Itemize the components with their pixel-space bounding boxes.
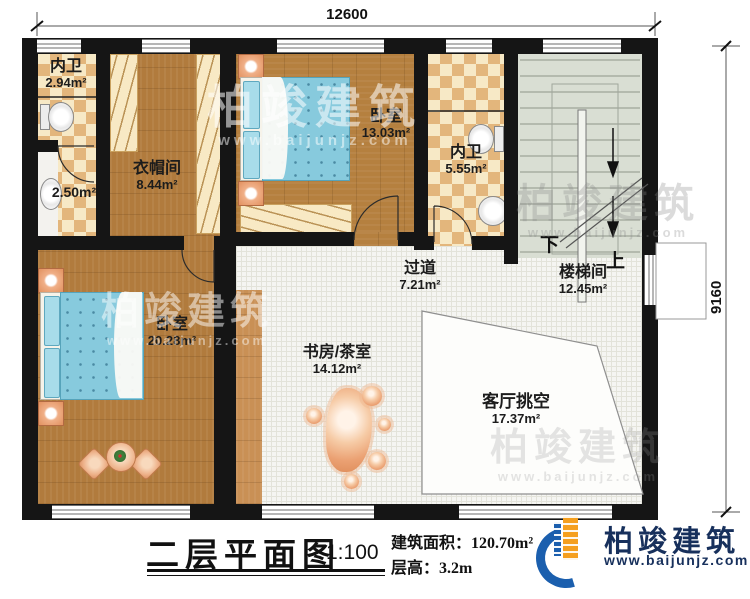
- pillow: [243, 131, 260, 179]
- room-name: 内卫: [28, 58, 104, 76]
- room-label-void: 客厅挑空 17.37m²: [452, 392, 580, 426]
- title-underline: [147, 569, 385, 572]
- pillow: [44, 296, 60, 346]
- room-name: 卧室: [120, 316, 224, 334]
- room-area: 17.37m²: [452, 412, 580, 427]
- rug-stone: [368, 452, 386, 470]
- room-area: 2.94m²: [28, 76, 104, 91]
- pillow: [243, 81, 260, 129]
- room-label-bedroom-1: 卧室 20.28m²: [120, 316, 224, 349]
- nightstand: [238, 54, 264, 79]
- room-name: 衣帽间: [108, 160, 206, 178]
- title-underline-thin: [147, 575, 385, 576]
- nightstand: [238, 181, 264, 206]
- logo-building-icon: [554, 522, 561, 556]
- nightstand: [38, 401, 64, 426]
- room-name: 过道: [374, 260, 466, 278]
- window: [142, 39, 190, 53]
- room-label-study: 书房/茶室 14.12m²: [278, 344, 396, 377]
- stair-up-label: 上: [606, 246, 625, 273]
- window: [446, 39, 492, 53]
- window: [262, 505, 374, 519]
- room-area: 7.21m²: [374, 278, 466, 293]
- window: [543, 39, 621, 53]
- room-label-cloakroom: 衣帽间 8.44m²: [108, 160, 206, 193]
- window: [277, 39, 384, 53]
- window: [37, 39, 81, 53]
- wall-segment: [236, 232, 354, 246]
- room-area: 14.12m²: [278, 362, 396, 377]
- dimension-right: 9160: [708, 250, 725, 314]
- stair-down-label: 下: [540, 230, 559, 257]
- floor-plan-page: { "title_block": { "title": "二层平面图", "sc…: [0, 0, 750, 580]
- room-label-bath-1b: 2.50m²: [42, 184, 106, 200]
- wall-segment: [22, 236, 110, 250]
- floor-stairwell: [518, 52, 642, 258]
- bed-sheet: [262, 77, 288, 179]
- room-label-bath-1: 内卫 2.94m²: [28, 58, 104, 91]
- floor-height-label: 层高：3.2m: [391, 554, 472, 578]
- room-area: 8.44m²: [108, 178, 206, 193]
- room-name: 客厅挑空: [452, 392, 580, 412]
- room-name: 内卫: [420, 144, 512, 162]
- wall-segment: [38, 140, 58, 152]
- room-label-bath-2: 内卫 5.55m²: [420, 144, 512, 177]
- rug-stone: [344, 474, 359, 489]
- rug-stone: [378, 418, 391, 431]
- room-label-bedroom-2: 卧室 13.03m²: [330, 108, 442, 141]
- wall-segment: [110, 236, 184, 250]
- rug-stone: [306, 408, 322, 424]
- pillow: [44, 348, 60, 398]
- room-name: 书房/茶室: [278, 344, 396, 362]
- room-label-corridor: 过道 7.21m²: [374, 260, 466, 293]
- room-area: 12.45m²: [524, 282, 642, 297]
- nightstand: [38, 268, 64, 293]
- window: [52, 505, 190, 519]
- room-area: 20.28m²: [120, 334, 224, 349]
- wall-segment: [414, 236, 434, 250]
- building-area-label: 建筑面积：120.70m²: [391, 529, 533, 553]
- room-area: 2.50m²: [42, 184, 106, 200]
- wall-segment: [214, 250, 236, 504]
- brand-logo: [536, 514, 600, 578]
- floor-door-gap-bedroom-2: [354, 232, 398, 246]
- plant-icon: [114, 450, 126, 462]
- wall-segment: [22, 38, 38, 520]
- brand-website: www.baijunjz.com: [604, 552, 749, 568]
- floor-strip: [236, 290, 262, 504]
- toilet-icon: [48, 102, 74, 132]
- rug-stone: [362, 386, 382, 406]
- logo-building-icon: [563, 516, 578, 560]
- wardrobe: [110, 54, 138, 152]
- room-name: 卧室: [330, 108, 442, 126]
- dimension-top: 12600: [312, 6, 382, 23]
- window: [644, 255, 657, 305]
- ac-platform: [656, 243, 706, 319]
- wall-segment: [214, 236, 236, 250]
- room-area: 13.03m²: [330, 126, 442, 141]
- scale-label: 1:100: [326, 541, 379, 565]
- wall-segment: [220, 52, 236, 236]
- room-area: 5.55m²: [420, 162, 512, 177]
- wardrobe: [240, 204, 352, 234]
